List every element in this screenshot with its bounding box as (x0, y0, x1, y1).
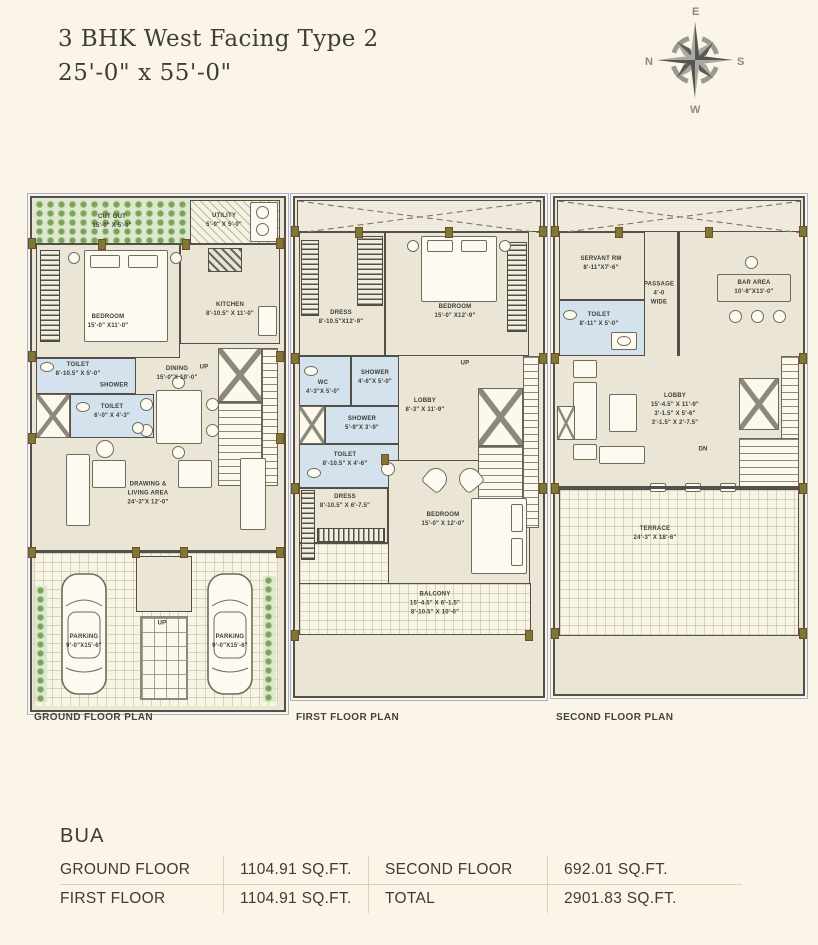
shaft-icon (36, 394, 70, 438)
ground-floor-plan: CUT OUT15'-0" X 5'-0" UTILITY5'-0" X 5'-… (30, 196, 286, 712)
stove-icon (208, 248, 242, 272)
bua-row-label: FIRST FLOOR (60, 885, 223, 913)
second-floor-plan: SERVANT RM8'-11"X7'-6" TOILET8'-11" X 5'… (553, 196, 805, 696)
dining-chair-icon (172, 446, 185, 459)
first-floor-plan: DRESS8'-10.5"X12'-9" BEDROOM15'-0" X12'-… (293, 196, 545, 698)
stairs-icon (739, 438, 799, 488)
column (132, 547, 140, 558)
bua-table: GROUND FLOOR 1104.91 SQ.FT. SECOND FLOOR… (60, 856, 742, 913)
column (355, 227, 363, 238)
sf-bar-label: BAR AREA10'-8"X13'-0" (734, 279, 773, 297)
gf-entry-platform (136, 556, 192, 612)
gf-parking-left-label: PARKING9'-0"X15'-6" (66, 633, 102, 651)
wardrobe-icon (301, 240, 319, 316)
void-cross-icon (558, 201, 802, 233)
pillow-icon (511, 504, 523, 532)
sink-bowl-icon (617, 336, 631, 346)
gf-bedroom-label: BEDROOM15'-0" X11'-0" (88, 313, 129, 331)
column (539, 483, 547, 494)
bedside-lamp-icon (407, 240, 419, 252)
bedside-lamp-icon (170, 252, 182, 264)
sf-stairs-dn-label: DN (698, 446, 707, 455)
column (381, 454, 389, 465)
ff-bedroom2-label: BEDROOM15'-0" X 12'-0" (422, 511, 465, 529)
shaft-icon (299, 406, 325, 444)
gf-parking-right-label: PARKING9'-0"X15'-6" (212, 633, 248, 651)
stair-void-icon (739, 378, 779, 430)
column (28, 433, 36, 444)
ff-shower1-label: SHOWER4'-6"X 5'-0" (358, 369, 392, 387)
shaft-icon (557, 406, 575, 440)
column (799, 483, 807, 494)
column (276, 351, 284, 362)
bua-row-label: TOTAL (368, 885, 547, 913)
column (705, 227, 713, 238)
wc-icon (563, 310, 577, 320)
column (799, 353, 807, 364)
sofa-icon (240, 458, 266, 530)
column (276, 433, 284, 444)
wardrobe-icon (317, 528, 385, 542)
stair-void-icon (478, 388, 523, 446)
ff-dress2-label: DRESS8'-10.5" X 6'-7.5" (320, 493, 370, 511)
column (276, 547, 284, 558)
ff-lobby-label: LOBBY8'-3" X 11'-9" (405, 397, 444, 415)
page-title: 3 BHK West Facing Type 2 (58, 26, 379, 54)
bench-icon (599, 446, 645, 464)
pillow-icon (461, 240, 487, 252)
column (551, 628, 559, 639)
column (551, 353, 559, 364)
pillow-icon (128, 255, 158, 268)
passage-wall (677, 232, 680, 356)
column (291, 226, 299, 237)
column (291, 483, 299, 494)
entry-steps-icon (140, 616, 188, 700)
wardrobe-icon (507, 242, 527, 332)
bar-stool-icon (729, 310, 742, 323)
sofa-icon (66, 454, 90, 526)
column (276, 238, 284, 249)
column (180, 547, 188, 558)
ottoman-icon (178, 460, 212, 488)
compass-north-label: N (645, 56, 653, 68)
wc-icon (40, 362, 54, 372)
dining-chair-icon (140, 398, 153, 411)
plot-dimensions: 25'-0" x 55'-0" (58, 60, 232, 88)
column (539, 226, 547, 237)
ff-dress1-label: DRESS8'-10.5"X12'-9" (319, 309, 364, 327)
sink-bowl-icon (256, 206, 269, 219)
ground-floor-caption: GROUND FLOOR PLAN (34, 713, 153, 723)
table-icon (609, 394, 637, 432)
bua-row-label: GROUND FLOOR (60, 856, 223, 885)
compass-west-label: W (690, 104, 700, 116)
gf-dining-label: DINING15'-0"X 10'-0" (156, 365, 197, 383)
bar-stool-icon (745, 256, 758, 269)
ff-void-open-below (297, 200, 541, 232)
sf-terrace-label: TERRACE24'-3" X 18'-6" (634, 525, 677, 543)
column (551, 483, 559, 494)
ff-balcony-label: BALCONY15'-4.5" X 6'-1.5"8'-10.5" X 10'-… (410, 591, 460, 618)
bua-row-value: 692.01 SQ.FT. (547, 856, 742, 885)
column (291, 353, 299, 364)
compass-east-label: E (692, 6, 699, 18)
bua-row-value: 2901.83 SQ.FT. (547, 885, 742, 913)
column (525, 630, 533, 641)
gf-entry-up-label: UP (158, 620, 167, 629)
bar-stool-icon (773, 310, 786, 323)
bua-row-label: SECOND FLOOR (368, 856, 547, 885)
column (799, 628, 807, 639)
column (98, 239, 106, 250)
bedside-lamp-icon (499, 240, 511, 252)
column (28, 547, 36, 558)
bedside-lamp-icon (68, 252, 80, 264)
hedge-icon (35, 586, 47, 702)
ff-bedroom1-label: BEDROOM15'-0" X12'-9" (434, 303, 475, 321)
round-table-icon (96, 440, 114, 458)
floor-plan-sheet: 3 BHK West Facing Type 2 25'-0" x 55'-0"… (0, 0, 818, 945)
ottoman-icon (92, 460, 126, 488)
pillow-icon (511, 538, 523, 566)
gf-shower-label: SHOWER (100, 382, 128, 391)
sofa-icon (573, 382, 597, 440)
sf-lobby-label: LOBBY15'-4.5" X 11'-9"3'-1.5" X 5'-6"3'-… (651, 392, 699, 428)
gf-stairs-up-label: UP (200, 364, 209, 373)
ff-toilet-label: TOILET8'-10.5" X 4'-6" (323, 451, 368, 469)
gf-toilet2-label: TOILET6'-0" X 4'-3" (94, 403, 130, 421)
pillow-icon (427, 240, 453, 252)
cabinet-icon (573, 360, 597, 378)
compass-south-label: S (737, 56, 744, 68)
stair-void-icon (218, 348, 262, 402)
column (182, 239, 190, 250)
compass-rose-icon: E N S W (645, 6, 745, 116)
sf-servant-label: SERVANT RM8'-11"X7'-6" (580, 255, 621, 273)
column (291, 630, 299, 641)
gf-kitchen-label: KITCHEN8'-10.5" X 11'-0" (206, 301, 254, 319)
wc-icon (76, 402, 90, 412)
void-cross-icon (298, 201, 542, 233)
gf-cutout-label: CUT OUT15'-0" X 5'-0" (92, 213, 131, 231)
hedge-icon (263, 576, 276, 702)
first-floor-caption: FIRST FLOOR PLAN (296, 713, 399, 723)
gf-utility-label: UTILITY5'-0" X 5'-0" (206, 212, 242, 230)
front-wall (34, 550, 278, 553)
sf-toilet-label: TOILET8'-11" X 5'-0" (579, 311, 618, 329)
wc-icon (304, 366, 318, 376)
sink-bowl-icon (256, 223, 269, 236)
ff-wc-label: WC4'-3"X 5'-0" (306, 379, 340, 397)
second-floor-caption: SECOND FLOOR PLAN (556, 713, 673, 723)
dining-table-icon (156, 390, 202, 444)
sf-void-open-below (557, 200, 801, 232)
sf-passage-label: PASSAGE4'-0WIDE (644, 281, 674, 308)
bua-row-value: 1104.91 SQ.FT. (223, 885, 368, 913)
pillow-icon (90, 255, 120, 268)
fridge-icon (258, 306, 277, 336)
column (28, 351, 36, 362)
cabinet-icon (573, 444, 597, 460)
wardrobe-icon (40, 250, 60, 342)
ff-stairs-up-label: UP (461, 360, 470, 369)
column (539, 353, 547, 364)
wardrobe-icon (357, 236, 383, 306)
compass-star (655, 20, 735, 100)
column (551, 226, 559, 237)
wc-icon (307, 468, 321, 478)
column (799, 226, 807, 237)
ff-shower2-label: SHOWER5'-9"X 3'-9" (345, 415, 379, 433)
column (615, 227, 623, 238)
lobby-terrace-wall (557, 486, 801, 489)
bua-row-value: 1104.91 SQ.FT. (223, 856, 368, 885)
sink-bowl-icon (132, 422, 144, 434)
bar-stool-icon (751, 310, 764, 323)
wardrobe-icon (301, 490, 315, 560)
sf-terrace (559, 489, 799, 636)
bua-heading: BUA (60, 826, 105, 846)
gf-toilet1-label: TOILET8'-10.5" X 5'-0" (56, 361, 101, 379)
gf-living-label: DRAWING &LIVING AREA24'-3"X 12'-0" (127, 481, 168, 508)
column (445, 227, 453, 238)
column (28, 238, 36, 249)
